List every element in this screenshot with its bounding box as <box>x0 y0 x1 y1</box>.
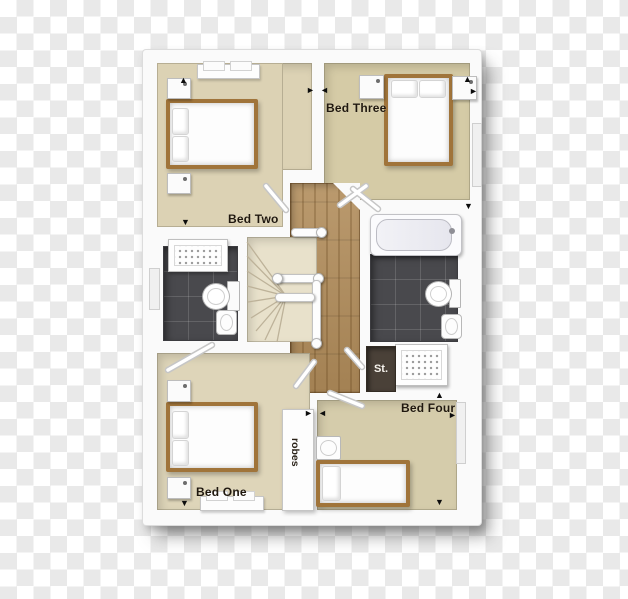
ensuite-shower-tray <box>168 239 228 272</box>
window-ensuite <box>149 268 160 310</box>
shower-tray-texture <box>401 350 442 380</box>
arrow-left-icon: ◄ <box>320 86 329 95</box>
arrow-up-icon: ▲ <box>463 75 472 84</box>
bed-three-double-bed <box>384 74 453 166</box>
newel-post <box>316 227 327 238</box>
store-label: St. <box>374 363 388 375</box>
shower-tray-texture <box>174 245 222 266</box>
arrow-up-icon: ▲ <box>435 391 444 400</box>
robes-label: robes <box>289 438 301 467</box>
floor-plan: St. robes ► ◄ ▲ ▼ <box>143 50 481 525</box>
arrow-up-icon: ▲ <box>179 76 188 85</box>
bed-four-wash-basin <box>316 436 341 460</box>
bathroom-shower-tray <box>395 344 448 386</box>
pillow <box>172 440 189 466</box>
ensuite-wash-basin <box>216 310 237 335</box>
arrow-down-icon: ▼ <box>435 498 444 507</box>
banister-rail <box>275 293 315 302</box>
transparency-checkerboard-background: St. robes ► ◄ ▲ ▼ <box>0 0 628 599</box>
window-bed-three <box>472 123 482 187</box>
newel-post <box>272 273 283 284</box>
arrow-down-icon: ▼ <box>180 499 189 508</box>
arrow-left-icon: ◄ <box>318 409 327 418</box>
pillow <box>419 80 446 98</box>
room-label-bed-one: Bed One <box>196 485 247 499</box>
bed-one-double-bed <box>166 402 258 472</box>
bath-tap <box>449 228 455 234</box>
bathtub <box>370 214 462 256</box>
pillow <box>322 466 341 501</box>
newel-post <box>311 338 322 349</box>
arrow-down-icon: ▼ <box>464 202 473 211</box>
ensuite-toilet-bowl <box>202 283 230 310</box>
staircase-floor <box>247 237 317 342</box>
pillow <box>391 80 418 98</box>
pillow <box>172 108 189 135</box>
bed-three-nightstand <box>359 75 384 99</box>
bed-two-nightstand <box>167 173 191 194</box>
room-label-bed-three: Bed Three <box>326 101 386 115</box>
arrow-right-icon: ► <box>304 409 313 418</box>
storage-cupboard: St. <box>366 346 396 392</box>
room-label-bed-four: Bed Four <box>401 401 455 415</box>
bathroom-wash-basin <box>441 314 462 339</box>
bathtub-inner <box>376 219 452 251</box>
pillow <box>172 136 189 162</box>
dressing-table-stool <box>230 61 252 71</box>
bed-two-double-bed <box>166 99 258 169</box>
bed-one-nightstand <box>167 477 191 499</box>
bed-four-single-bed <box>316 460 410 507</box>
arrow-right-icon: ► <box>306 86 315 95</box>
dressing-table-stool <box>203 61 225 71</box>
bed-one-nightstand <box>167 380 191 402</box>
arrow-right-icon: ► <box>469 87 478 96</box>
pillow <box>172 411 189 439</box>
arrow-down-icon: ▼ <box>181 218 190 227</box>
bathroom-toilet-bowl <box>425 281 452 307</box>
room-label-bed-two: Bed Two <box>228 212 279 226</box>
banister-rail <box>312 280 321 344</box>
window-bed-four <box>456 402 466 464</box>
